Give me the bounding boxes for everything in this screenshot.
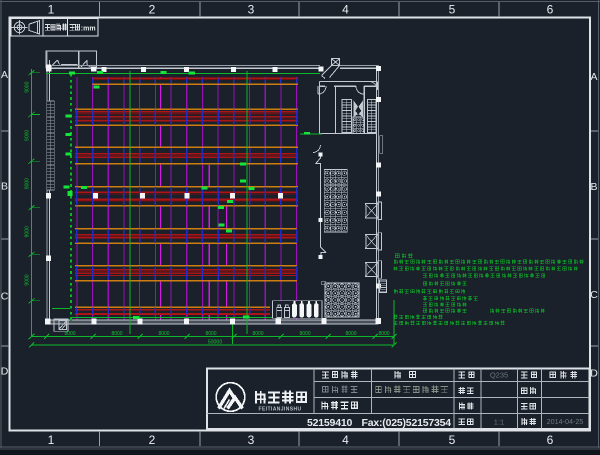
svg-text:9000: 9000 [25, 274, 31, 285]
svg-text:4: 4 [342, 433, 349, 447]
svg-text:8000: 8000 [299, 331, 310, 337]
svg-text:9000: 9000 [25, 81, 31, 92]
svg-text:B: B [590, 181, 597, 193]
svg-text:8000: 8000 [158, 331, 169, 337]
svg-text:2: 2 [149, 3, 156, 17]
svg-text:6: 6 [547, 433, 554, 447]
svg-text::mm: :mm [81, 26, 96, 33]
svg-text:B: B [1, 181, 8, 193]
svg-text:8000: 8000 [111, 331, 122, 337]
svg-text:52159410: 52159410 [307, 417, 352, 429]
svg-text:8000: 8000 [345, 331, 356, 337]
svg-text:9000: 9000 [25, 130, 31, 141]
svg-text:FEITIANJINSHU: FEITIANJINSHU [259, 406, 302, 412]
svg-text:8000: 8000 [205, 331, 216, 337]
svg-text:8000: 8000 [64, 331, 75, 337]
svg-text:Fax:(025)52157354: Fax:(025)52157354 [362, 417, 452, 429]
svg-text:8000: 8000 [378, 331, 389, 337]
svg-text:C: C [590, 289, 598, 301]
svg-text:D: D [1, 366, 9, 378]
svg-text:A: A [1, 69, 8, 81]
svg-text:1: 1 [48, 433, 55, 447]
svg-text:2014-04-25: 2014-04-25 [547, 417, 584, 426]
svg-text:6: 6 [547, 3, 554, 17]
svg-text:1: 1 [48, 3, 55, 17]
svg-text:8000: 8000 [252, 331, 263, 337]
svg-text:5: 5 [449, 3, 456, 17]
svg-text:3: 3 [248, 3, 255, 17]
svg-text:2: 2 [149, 433, 156, 447]
svg-text:D: D [590, 368, 598, 380]
svg-text:3: 3 [248, 433, 255, 447]
svg-text:50000: 50000 [208, 340, 223, 346]
svg-text:Q235: Q235 [490, 371, 508, 380]
svg-text:5: 5 [449, 433, 456, 447]
svg-text:1:1: 1:1 [494, 417, 504, 426]
svg-text:A: A [590, 71, 597, 83]
svg-text:4: 4 [342, 3, 349, 17]
svg-text:C: C [1, 291, 9, 303]
svg-text:9000: 9000 [25, 226, 31, 237]
svg-text:9000: 9000 [25, 178, 31, 189]
